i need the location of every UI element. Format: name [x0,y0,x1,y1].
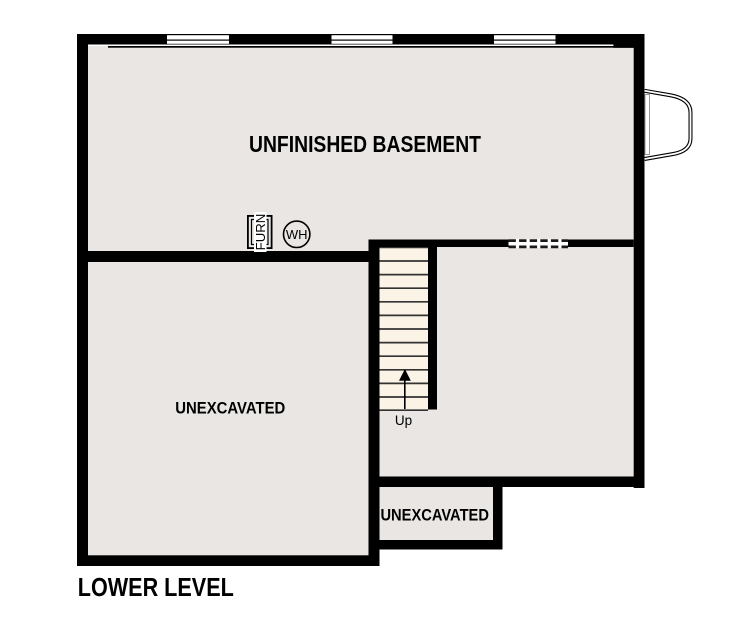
svg-text:UNEXCAVATED: UNEXCAVATED [175,399,285,418]
svg-text:UNFINISHED BASEMENT: UNFINISHED BASEMENT [249,131,481,157]
svg-text:UNEXCAVATED: UNEXCAVATED [380,505,489,524]
svg-text:FURN: FURN [253,214,268,251]
svg-text:LOWER LEVEL: LOWER LEVEL [78,574,234,602]
svg-text:WH: WH [286,227,308,242]
svg-text:Up: Up [395,413,412,428]
